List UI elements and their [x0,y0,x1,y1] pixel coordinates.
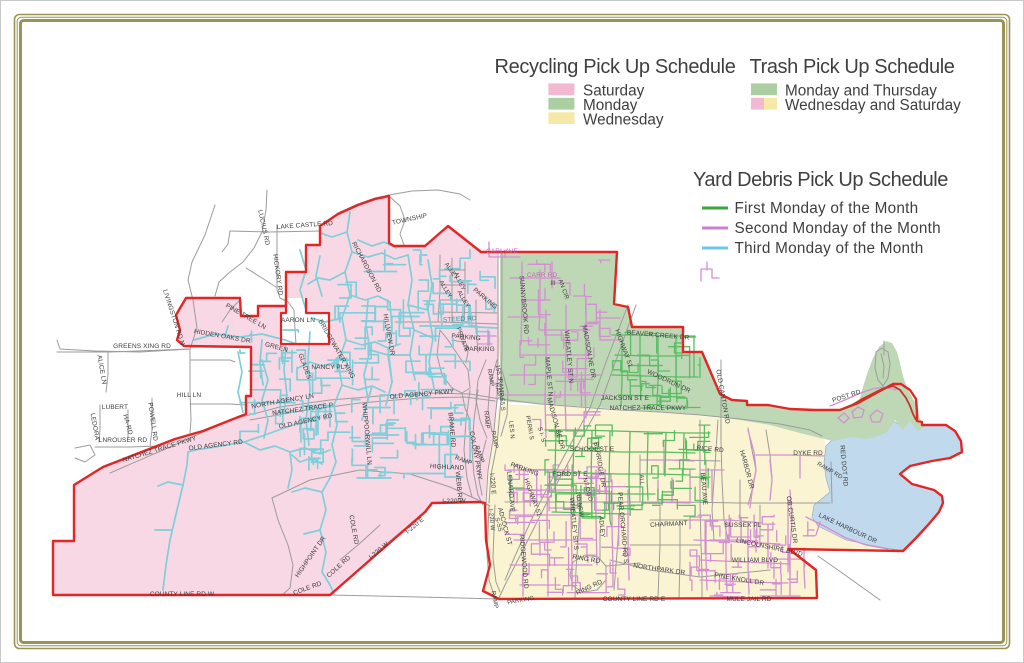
svg-text:CARL AVE: CARL AVE [486,248,518,255]
svg-text:Trash Pick Up Schedule: Trash Pick Up Schedule [750,56,955,78]
svg-text:Yard Debris Pick Up Schedule: Yard Debris Pick Up Schedule [693,169,948,191]
svg-text:I-220 W: I-220 W [442,498,466,505]
svg-text:GREENS XING RD: GREENS XING RD [113,343,171,350]
svg-text:SUSSEX PL: SUSSEX PL [724,522,761,529]
svg-text:III: III [550,281,556,287]
svg-text:ALL: ALL [638,474,645,486]
svg-text:AARON LN: AARON LN [281,317,315,324]
svg-text:NANCY PL: NANCY PL [311,364,344,371]
svg-text:FORD ST E: FORD ST E [552,471,588,478]
svg-text:Third Monday of the Month: Third Monday of the Month [735,240,924,257]
svg-text:Second Monday of the Month: Second Monday of the Month [735,220,941,237]
svg-text:LNROUSER RD: LNROUSER RD [99,437,148,444]
svg-text:JACKSON ST E: JACKSON ST E [601,395,650,402]
svg-text:COUNTY LINE RD W: COUNTY LINE RD W [150,591,215,598]
svg-text:NATCHEZ TRACE PKWY: NATCHEZ TRACE PKWY [610,405,687,412]
svg-text:DYKE RD: DYKE RD [793,450,823,457]
svg-text:COUNTY LINE RD E: COUNTY LINE RD E [603,596,666,603]
svg-text:MULE JAIL RD: MULE JAIL RD [726,596,771,603]
svg-text:SCHOOL ST E: SCHOOL ST E [570,446,615,453]
svg-text:Recycling Pick Up Schedule: Recycling Pick Up Schedule [494,56,735,78]
svg-text:First Monday of the Month: First Monday of the Month [735,200,919,217]
svg-text:WILLIAM BLVD: WILLIAM BLVD [732,557,778,564]
svg-text:CARR RD: CARR RD [527,272,558,279]
svg-text:Wednesday: Wednesday [583,112,664,129]
svg-text:Wednesday and Saturday: Wednesday and Saturday [785,97,961,114]
svg-text:HILL LN: HILL LN [177,392,202,399]
svg-text:LUBERT: LUBERT [102,404,128,411]
